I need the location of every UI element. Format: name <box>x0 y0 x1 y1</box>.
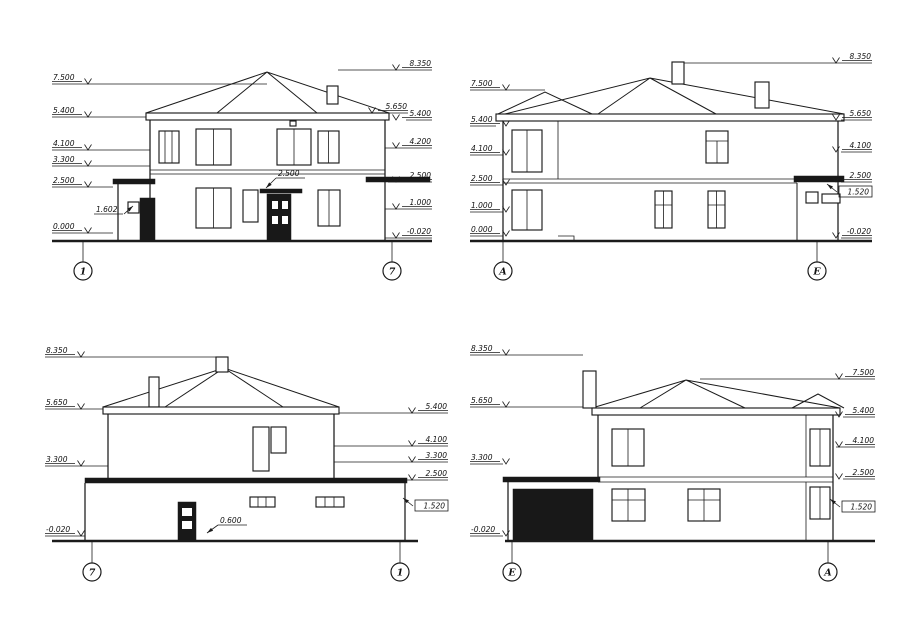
mark-value: 5.400 <box>853 406 875 415</box>
mark-value: 4.100 <box>850 141 872 150</box>
eaves-band <box>146 113 389 120</box>
elevation-rear-7-1: 8.350 5.650 3.300 -0.020 5.400 4.100 3.3… <box>45 346 448 581</box>
window <box>253 427 269 471</box>
elevation-mark: 5.650 <box>470 396 583 407</box>
mark-value: 2.500 <box>426 469 448 478</box>
mark-value: -0.020 <box>471 525 495 534</box>
mark-arrow <box>503 350 510 356</box>
mark-value: 0.000 <box>471 225 493 234</box>
elevation-front-1-7: 7.500 5.400 4.100 3.300 2.500 0.000 8.35… <box>52 59 432 280</box>
floor-band <box>503 179 797 183</box>
upper-walls <box>108 414 334 478</box>
door-panel <box>272 201 278 209</box>
porch-door <box>140 198 155 241</box>
elevations-drawing: 7.500 5.400 4.100 3.300 2.500 0.000 8.35… <box>0 0 918 642</box>
floor-band <box>150 170 385 174</box>
note-label: 0.600 <box>207 516 247 533</box>
mark-value: 5.400 <box>410 109 432 118</box>
mark-arrow <box>393 65 400 71</box>
mark-value: 2.500 <box>410 171 432 180</box>
eaves-band <box>103 407 339 414</box>
garage-roof-band <box>503 477 600 482</box>
arrowhead <box>207 528 213 533</box>
building-front <box>52 72 432 241</box>
door-panel <box>282 216 288 224</box>
axis-bubble: 7 <box>383 241 401 280</box>
note-value: 0.600 <box>220 516 242 525</box>
door-panel <box>182 521 192 529</box>
elevation-mark: 5.400 <box>339 402 448 413</box>
mark-arrow <box>393 233 400 239</box>
elevation-mark: 4.200 <box>385 137 432 148</box>
elevation-mark: 2.500 <box>407 469 448 480</box>
elevation-mark: 1.000 <box>385 198 432 209</box>
mark-value: 5.650 <box>471 396 493 405</box>
roof-outline <box>498 78 844 114</box>
mark-arrow <box>393 204 400 210</box>
axis-letter: 1 <box>397 568 404 579</box>
elevation-mark: 8.350 <box>470 344 583 355</box>
elevation-mark: 8.350 <box>338 59 432 70</box>
mark-arrow <box>409 441 416 447</box>
elevation-mark: 4.100 <box>52 139 150 150</box>
axis-bubble: А <box>494 241 512 280</box>
mark-value: 5.650 <box>386 102 408 111</box>
mark-value: 7.500 <box>853 368 875 377</box>
mark-value: 3.300 <box>46 455 68 464</box>
mark-value: -0.020 <box>847 227 871 236</box>
mark-arrow <box>393 143 400 149</box>
porch-roof <box>113 179 155 184</box>
mark-arrow <box>85 182 92 188</box>
mark-arrow <box>409 408 416 414</box>
mark-arrow <box>85 112 92 118</box>
axis-bubble: А <box>819 541 837 581</box>
elevation-mark: 7.500 <box>470 79 545 90</box>
axis-letter: Е <box>507 568 516 579</box>
mark-value: 4.100 <box>853 436 875 445</box>
porch-window <box>128 202 139 213</box>
note-label: 2.500 <box>266 169 305 188</box>
mark-value: 8.350 <box>471 344 493 353</box>
mark-value: 7.500 <box>471 79 493 88</box>
roof-outline <box>103 368 339 407</box>
mark-arrow <box>503 459 510 465</box>
mark-arrow <box>85 161 92 167</box>
axis-bubble: Е <box>808 241 826 280</box>
elevation-mark: 3.300 <box>470 453 510 464</box>
mark-value: 4.200 <box>410 137 432 146</box>
building-side-ae <box>470 62 872 241</box>
mark-value: 4.100 <box>426 435 448 444</box>
mark-value: -0.020 <box>407 227 431 236</box>
elevation-mark: 5.400 <box>836 406 876 417</box>
mark-value: 5.400 <box>471 115 493 124</box>
mark-value: 1.000 <box>410 198 432 207</box>
note-value: 2.500 <box>278 169 300 178</box>
mark-value: 0.000 <box>53 222 75 231</box>
axis-letter: 7 <box>89 568 96 579</box>
building-side-ea <box>503 371 875 541</box>
elevation-mark: 4.100 <box>334 435 448 446</box>
mark-arrow <box>85 145 92 151</box>
chimney <box>327 86 338 104</box>
axis-bubble: 1 <box>391 541 409 581</box>
eaves-band <box>496 114 844 121</box>
note-label: 1.602 <box>94 205 133 214</box>
window <box>612 489 645 521</box>
elevation-mark: 2.500 <box>52 176 113 187</box>
mark-value: 3.300 <box>53 155 75 164</box>
door-panel <box>272 216 278 224</box>
mark-value: 4.100 <box>53 139 75 148</box>
mark-arrow <box>503 85 510 91</box>
elevation-mark: -0.020 <box>385 227 432 238</box>
axis-bubble: 7 <box>83 541 101 581</box>
axis-letter: 7 <box>389 267 396 278</box>
window <box>271 427 286 453</box>
chimney <box>583 371 596 408</box>
mark-value: 1.520 <box>851 503 873 512</box>
mark-value: 5.650 <box>850 109 872 118</box>
mark-value: 8.350 <box>46 346 68 355</box>
elevation-mark: 4.100 <box>836 436 876 447</box>
mark-arrow <box>836 442 843 448</box>
mark-value: 3.300 <box>471 453 493 462</box>
door-canopy <box>260 189 302 193</box>
mark-value: 4.100 <box>471 144 493 153</box>
door-panel <box>282 201 288 209</box>
elevation-mark: 1.520 <box>403 498 448 511</box>
mark-arrow <box>78 352 85 358</box>
axis-letter: А <box>498 267 507 278</box>
terrace-roof-band <box>85 478 407 483</box>
mark-value: 2.500 <box>850 171 872 180</box>
roof-outline <box>592 380 844 408</box>
mark-arrow <box>78 461 85 467</box>
mark-arrow <box>836 374 843 380</box>
axis-bubble: 1 <box>74 241 92 280</box>
axis-bubble: Е <box>503 541 521 581</box>
mark-value: 5.400 <box>53 106 75 115</box>
mark-arrow <box>85 79 92 85</box>
mark-arrow <box>836 474 843 480</box>
mark-value: 2.500 <box>53 176 75 185</box>
mark-arrow <box>409 475 416 481</box>
mark-value: -0.020 <box>46 525 70 534</box>
mark-arrow <box>503 402 510 408</box>
note-value: 1.602 <box>96 205 118 214</box>
mark-value: 2.500 <box>853 468 875 477</box>
window <box>243 190 258 222</box>
elevation-mark: -0.020 <box>45 525 85 536</box>
slit-window <box>250 497 275 507</box>
garage-door-opening <box>513 489 593 541</box>
axis-letter: А <box>823 568 832 579</box>
mark-value: 1.520 <box>848 188 870 197</box>
elevation-side-a-e: 7.500 5.400 4.100 2.500 1.000 0.000 8.35… <box>470 52 872 280</box>
elevation-mark: 5.650 <box>369 102 409 113</box>
elevation-mark: 8.350 <box>45 346 216 357</box>
window <box>159 131 179 163</box>
mark-arrow <box>85 228 92 234</box>
building-rear <box>52 357 418 541</box>
slit-window <box>316 497 344 507</box>
mark-value: 2.500 <box>471 174 493 183</box>
mark-value: 3.300 <box>426 451 448 460</box>
roof-outline <box>146 72 389 113</box>
elevation-side-e-a: 8.350 5.650 3.300 -0.020 7.500 5.400 4.1… <box>470 344 875 581</box>
chimney <box>755 82 769 108</box>
elevation-mark: 5.650 <box>45 398 103 409</box>
floor-band <box>598 477 833 482</box>
mark-value: 1.520 <box>424 502 446 511</box>
elevation-mark: 3.300 <box>52 155 150 166</box>
mark-arrow <box>409 457 416 463</box>
mark-value: 5.650 <box>46 398 68 407</box>
drawing-sheet: 7.500 5.400 4.100 3.300 2.500 0.000 8.35… <box>0 0 918 642</box>
elevation-mark: 7.500 <box>700 368 875 379</box>
garage-window <box>822 194 840 203</box>
mark-arrow <box>78 531 85 537</box>
mark-value: 1.000 <box>471 201 493 210</box>
vent <box>290 121 296 126</box>
door-panel <box>182 508 192 516</box>
garage-window <box>806 192 818 203</box>
elevation-mark: 1.520 <box>830 499 875 512</box>
elevation-mark: 3.300 <box>334 451 448 462</box>
elevation-mark: 2.500 <box>836 468 876 479</box>
elevation-mark: 0.000 <box>52 222 113 233</box>
elevation-mark: -0.020 <box>470 525 510 536</box>
elevation-mark: 7.500 <box>52 73 267 84</box>
chimney <box>149 377 159 407</box>
elevation-mark: 5.400 <box>52 106 146 117</box>
chimney <box>672 62 684 84</box>
mark-arrow <box>833 58 840 64</box>
mark-value: 8.350 <box>850 52 872 61</box>
axis-letter: Е <box>812 267 821 278</box>
eaves-band <box>592 408 840 415</box>
mark-value: 7.500 <box>53 73 75 82</box>
elevation-mark: 8.350 <box>684 52 872 63</box>
lower-walls <box>85 483 405 541</box>
elevation-mark: 3.300 <box>45 455 108 466</box>
chimney <box>216 357 228 372</box>
mark-arrow <box>393 115 400 121</box>
mark-value: 8.350 <box>410 59 432 68</box>
axis-letter: 1 <box>80 267 87 278</box>
mark-value: 5.400 <box>426 402 448 411</box>
mark-arrow <box>78 404 85 410</box>
